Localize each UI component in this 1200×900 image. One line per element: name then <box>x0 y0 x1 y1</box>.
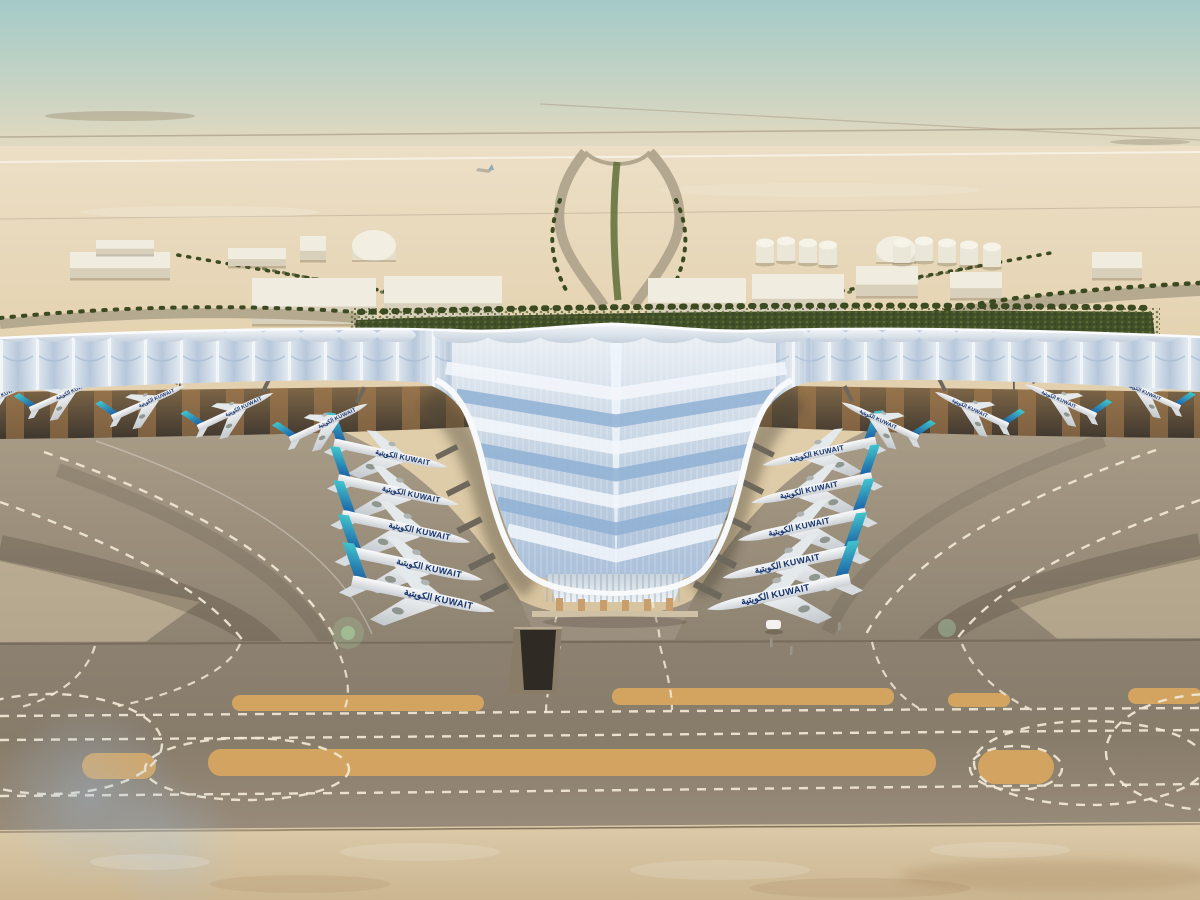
building <box>96 240 154 257</box>
fuel-tank <box>914 237 934 265</box>
fuel-tank <box>755 239 775 267</box>
terminal-entrance-glazing <box>532 574 698 628</box>
bollard <box>770 638 773 647</box>
fuel-tank <box>776 237 796 265</box>
dome-building <box>352 230 396 262</box>
lens-flare-green <box>938 619 956 637</box>
fuel-tank <box>892 239 912 267</box>
building <box>1092 252 1142 281</box>
sand-strip <box>1128 688 1200 704</box>
sand-strip <box>232 695 484 711</box>
building <box>228 248 286 269</box>
tunnel-ramp <box>508 628 562 694</box>
building <box>950 272 1002 301</box>
fuel-tank <box>937 239 957 267</box>
sand-strip <box>948 693 1010 707</box>
scene-canvas: الكويتية KUWAIT الكويتية KUWAIT الكويتية… <box>0 0 1200 900</box>
sand-strip <box>612 688 894 705</box>
sand-strip <box>978 750 1054 784</box>
fuel-tank <box>818 241 838 269</box>
building <box>300 236 326 263</box>
service-vehicle <box>765 620 783 635</box>
fuel-tank <box>959 241 979 269</box>
fuel-tank <box>982 243 1002 271</box>
bollard <box>790 646 793 655</box>
aerial-rendering-kuwait-airport: الكويتية KUWAIT الكويتية KUWAIT الكويتية… <box>0 0 1200 900</box>
bollard <box>838 622 841 630</box>
sand-strip <box>208 749 936 776</box>
fuel-tank <box>798 239 818 267</box>
building <box>856 266 918 299</box>
